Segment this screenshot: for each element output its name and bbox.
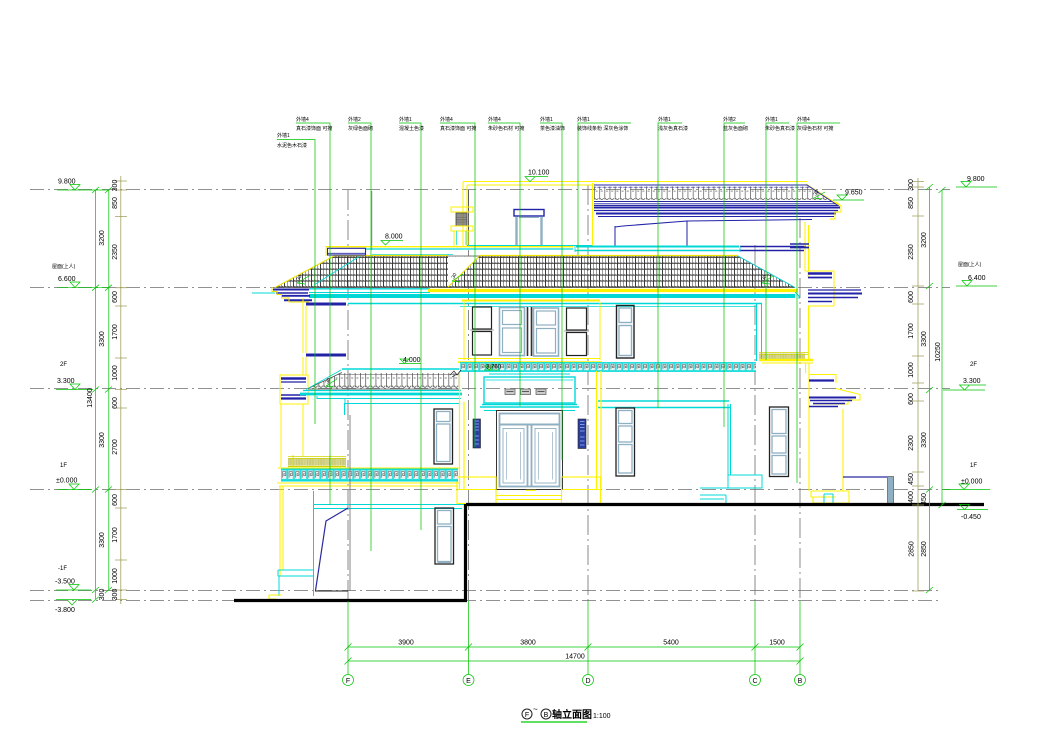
svg-text:C: C: [752, 678, 757, 685]
svg-text:450: 450: [921, 493, 928, 505]
svg-text:外墙1: 外墙1: [765, 116, 778, 123]
svg-text:外墙2: 外墙2: [348, 116, 361, 123]
svg-text:2850: 2850: [909, 541, 916, 557]
svg-text:10250: 10250: [935, 342, 942, 362]
svg-text:真石漆饰面 可掩: 真石漆饰面 可掩: [296, 125, 332, 132]
svg-text:600: 600: [112, 291, 119, 303]
svg-text:屋面(上人): 屋面(上人): [52, 263, 76, 270]
svg-text:2350: 2350: [112, 244, 119, 260]
svg-text:混凝土色漆: 混凝土色漆: [399, 125, 424, 132]
svg-text:600: 600: [908, 291, 915, 303]
svg-text:1000: 1000: [112, 568, 119, 584]
svg-text:外墙1: 外墙1: [577, 116, 590, 123]
svg-text:朱砂色真石漆: 朱砂色真石漆: [765, 125, 795, 132]
svg-text:外墙4: 外墙4: [440, 116, 453, 123]
svg-text:1F: 1F: [970, 463, 977, 469]
svg-text:2F: 2F: [60, 362, 67, 368]
svg-text:±0.000: ±0.000: [961, 479, 982, 486]
svg-text:850: 850: [908, 197, 915, 209]
svg-text:真石漆饰面 可掩: 真石漆饰面 可掩: [440, 125, 476, 132]
svg-text:3.760: 3.760: [486, 365, 502, 371]
svg-text:9.800: 9.800: [58, 179, 76, 186]
svg-text:-3.800: -3.800: [55, 607, 75, 614]
svg-text:1500: 1500: [769, 640, 785, 647]
svg-text:1700: 1700: [908, 323, 915, 339]
svg-text:灰绿色面砌: 灰绿色面砌: [348, 125, 373, 132]
svg-text:13400: 13400: [87, 388, 94, 408]
svg-text:~: ~: [533, 705, 538, 714]
svg-text:外墙4: 外墙4: [296, 116, 309, 123]
svg-text:1700: 1700: [112, 527, 119, 543]
svg-text:3.300: 3.300: [57, 378, 75, 385]
svg-text:外墙2: 外墙2: [723, 116, 736, 123]
svg-text:300: 300: [112, 180, 119, 192]
svg-text:-3.500: -3.500: [55, 579, 75, 586]
svg-text:3.300: 3.300: [963, 378, 981, 385]
svg-text:朱砂色石材 可掩: 朱砂色石材 可掩: [488, 125, 524, 132]
svg-text:-1F: -1F: [58, 566, 67, 572]
svg-text:E: E: [466, 678, 471, 685]
svg-text:浅灰色真石漆: 浅灰色真石漆: [658, 125, 688, 132]
svg-text:14700: 14700: [565, 654, 585, 661]
svg-text:5400: 5400: [663, 640, 679, 647]
svg-text:2300: 2300: [908, 435, 915, 451]
svg-text:8.000: 8.000: [385, 234, 403, 241]
svg-text:轴立面图: 轴立面图: [552, 708, 592, 721]
svg-text:400: 400: [908, 491, 915, 503]
svg-text:外墙4: 外墙4: [488, 116, 501, 123]
svg-text:9.800: 9.800: [967, 176, 985, 183]
svg-text:灰绿色石材 可掩: 灰绿色石材 可掩: [797, 125, 833, 132]
svg-text:3200: 3200: [921, 232, 928, 248]
svg-text:3300: 3300: [921, 432, 928, 448]
svg-text:F: F: [346, 678, 350, 685]
svg-text:450: 450: [908, 473, 915, 485]
svg-text:外墙1: 外墙1: [277, 132, 290, 139]
svg-text:3300: 3300: [99, 532, 106, 548]
svg-text:2350: 2350: [908, 244, 915, 260]
svg-text:1700: 1700: [112, 324, 119, 340]
svg-text:850: 850: [112, 197, 119, 209]
svg-text:D: D: [585, 678, 590, 685]
svg-text:3300: 3300: [99, 331, 106, 347]
svg-text:300: 300: [112, 589, 119, 601]
svg-text:6.400: 6.400: [968, 275, 986, 282]
svg-text:600: 600: [908, 393, 915, 405]
svg-text:B: B: [798, 678, 803, 685]
svg-text:6.600: 6.600: [58, 276, 76, 283]
svg-text:4.000: 4.000: [403, 357, 421, 364]
svg-text:600: 600: [112, 494, 119, 506]
svg-text:外墙4: 外墙4: [797, 116, 810, 123]
svg-text:1000: 1000: [908, 362, 915, 378]
svg-text:-0.450: -0.450: [961, 514, 981, 521]
svg-text:水泥色木石漆: 水泥色木石漆: [277, 142, 307, 149]
svg-text:10.100: 10.100: [528, 170, 550, 177]
svg-text:3300: 3300: [99, 432, 106, 448]
svg-text:蓝灰色面砌: 蓝灰色面砌: [723, 125, 748, 132]
svg-text:600: 600: [112, 397, 119, 409]
svg-text:1:100: 1:100: [593, 713, 611, 720]
svg-text:3900: 3900: [398, 640, 414, 647]
svg-text:9.650: 9.650: [845, 190, 863, 197]
svg-text:屋面(上人): 屋面(上人): [958, 261, 982, 268]
svg-text:3200: 3200: [99, 230, 106, 246]
svg-text:茶色漆油饰: 茶色漆油饰: [540, 125, 565, 132]
svg-text:外墙1: 外墙1: [540, 116, 553, 123]
svg-text:300: 300: [908, 179, 915, 191]
svg-text:3800: 3800: [520, 640, 536, 647]
svg-text:F: F: [525, 712, 529, 719]
svg-text:300: 300: [99, 589, 106, 601]
svg-text:外墙1: 外墙1: [658, 116, 671, 123]
svg-text:外墙1: 外墙1: [399, 116, 412, 123]
svg-text:3300: 3300: [921, 331, 928, 347]
svg-text:±0.000: ±0.000: [56, 478, 77, 485]
svg-text:2850: 2850: [921, 541, 928, 557]
svg-text:1000: 1000: [112, 365, 119, 381]
svg-text:装饰线条粉 深灰色涂饰: 装饰线条粉 深灰色涂饰: [577, 125, 628, 132]
svg-text:1F: 1F: [60, 463, 67, 469]
svg-text:B: B: [544, 712, 549, 719]
svg-text:2700: 2700: [112, 439, 119, 455]
svg-text:2F: 2F: [970, 362, 977, 368]
